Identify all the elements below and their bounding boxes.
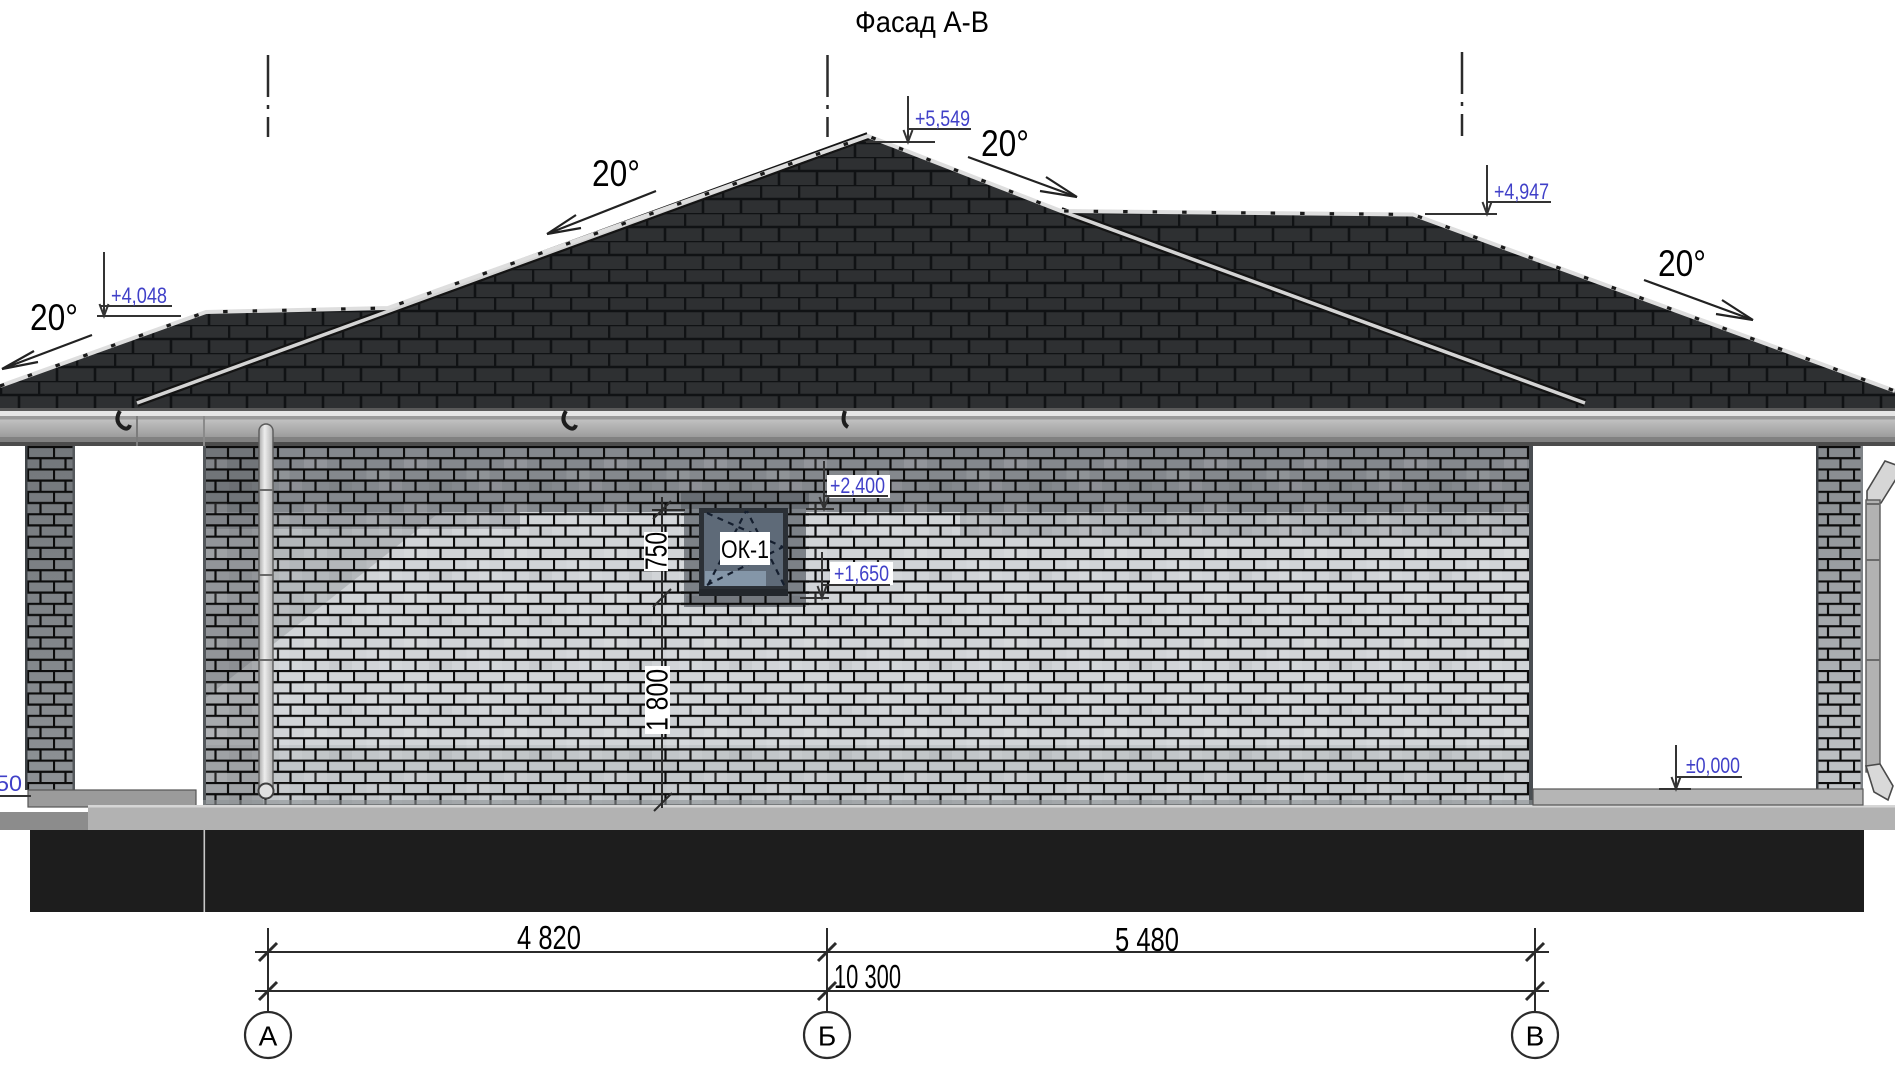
svg-text:+5,549: +5,549 xyxy=(915,106,970,131)
svg-text:4 820: 4 820 xyxy=(517,919,581,956)
svg-text:750: 750 xyxy=(639,532,674,570)
svg-text:20°: 20° xyxy=(592,153,640,194)
svg-text:+4,048: +4,048 xyxy=(111,283,167,308)
svg-text:5 480: 5 480 xyxy=(1115,921,1179,958)
svg-text:+4,947: +4,947 xyxy=(1494,179,1549,204)
svg-text:20°: 20° xyxy=(30,297,78,338)
svg-text:В: В xyxy=(1526,1021,1545,1052)
svg-text:±0,000: ±0,000 xyxy=(1686,753,1740,778)
svg-text:ОК-1: ОК-1 xyxy=(721,536,769,564)
svg-text:1 800: 1 800 xyxy=(640,669,675,731)
svg-text:А: А xyxy=(259,1021,278,1052)
svg-text:10 300: 10 300 xyxy=(834,958,901,995)
svg-text:+2,400: +2,400 xyxy=(830,473,885,498)
svg-text:Б: Б xyxy=(818,1021,836,1052)
svg-text:+1,650: +1,650 xyxy=(834,561,889,586)
svg-text:20°: 20° xyxy=(981,123,1029,164)
svg-text:20°: 20° xyxy=(1658,243,1706,284)
svg-text:50: 50 xyxy=(0,771,22,796)
svg-text:Фасад А-В: Фасад А-В xyxy=(855,6,989,39)
